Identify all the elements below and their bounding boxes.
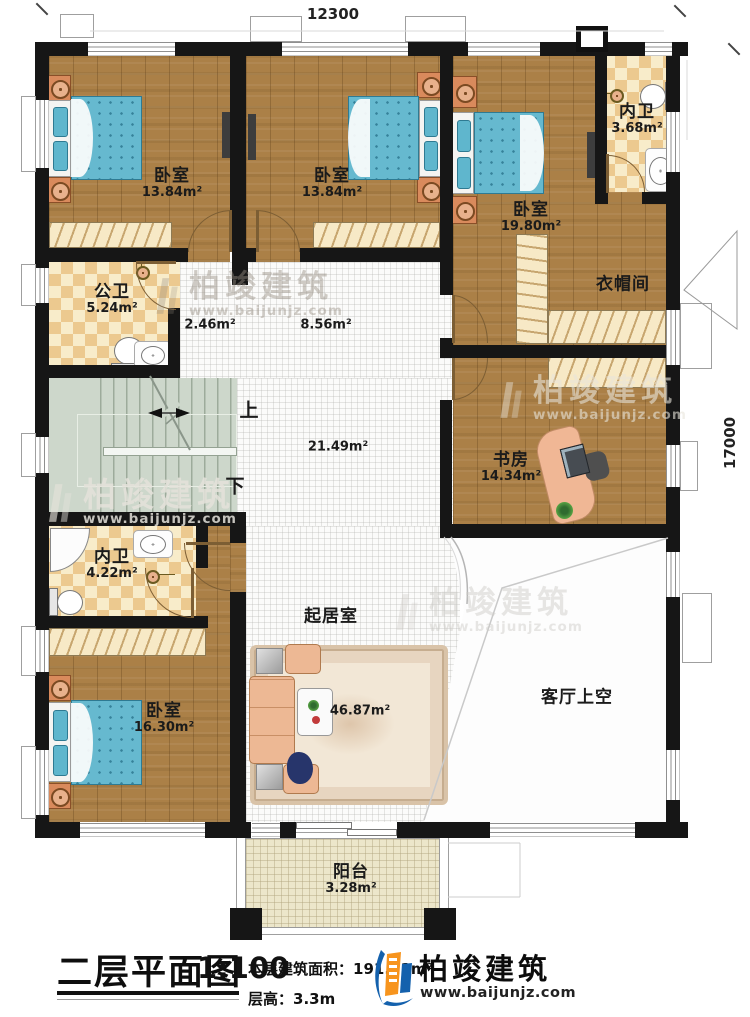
window — [666, 750, 680, 800]
wall — [35, 365, 180, 378]
window-sill — [21, 626, 36, 676]
area-label-corridor: 8.56m² — [300, 319, 351, 334]
window — [252, 823, 280, 837]
window — [80, 823, 205, 837]
area-label-living: 46.87m² — [330, 705, 390, 720]
window-sill — [250, 16, 302, 42]
wall — [460, 822, 490, 838]
nightstand — [417, 177, 442, 203]
tv — [222, 112, 230, 158]
door-leaf — [191, 568, 194, 618]
room-label-living: 起居室 — [304, 607, 358, 626]
wall — [49, 616, 208, 628]
window — [490, 823, 635, 837]
window-sill — [21, 96, 36, 172]
sofa — [249, 676, 295, 764]
wall — [35, 815, 49, 838]
window — [666, 552, 680, 597]
wall — [666, 800, 680, 838]
wall — [280, 822, 296, 838]
wall — [642, 192, 680, 204]
window — [35, 437, 49, 473]
armchair — [285, 644, 321, 674]
dimension-tick — [36, 3, 49, 16]
area-label-hallway: 2.46m² — [184, 319, 235, 334]
window — [88, 42, 175, 56]
window — [666, 112, 680, 172]
tv — [587, 132, 595, 178]
room-label-ensuite-top: 内卫3.68m² — [611, 103, 662, 137]
stairs-up-label: 上 — [239, 400, 258, 421]
room-label-public-bath: 公卫5.24m² — [86, 283, 137, 317]
dimension-height: 17000 — [721, 417, 739, 469]
sink — [141, 346, 165, 365]
sliding-door — [347, 829, 397, 836]
tv — [248, 114, 256, 160]
door-leaf — [229, 210, 232, 252]
window-sill — [21, 746, 36, 819]
flower-decor — [308, 700, 319, 711]
window — [282, 42, 408, 56]
bed-headboard — [48, 100, 71, 177]
door-leaf — [256, 210, 259, 252]
wall — [666, 597, 680, 750]
cushion — [287, 752, 313, 784]
window-sill — [405, 16, 466, 42]
wardrobe — [49, 628, 206, 656]
window-sill — [680, 303, 712, 369]
sink — [140, 535, 166, 554]
nightstand — [46, 177, 71, 203]
window — [35, 268, 49, 303]
door-leaf — [452, 358, 455, 400]
wall — [408, 42, 468, 56]
wall — [175, 42, 282, 56]
window — [35, 630, 49, 672]
nightstand — [46, 675, 71, 701]
brand-name: 柏竣建筑 — [419, 946, 551, 988]
side-table — [256, 648, 283, 674]
nightstand — [450, 196, 477, 224]
room-label-bedroom-4: 卧室16.30m² — [134, 702, 194, 736]
ceiling-light-icon — [610, 89, 624, 103]
wall — [35, 248, 188, 262]
wall — [666, 487, 680, 552]
flower-decor — [312, 716, 320, 724]
chimney — [576, 26, 608, 52]
floor-height-label: 层高：3.3m — [248, 988, 335, 1009]
wall — [35, 672, 49, 750]
side-table — [256, 764, 283, 790]
window-sill — [60, 14, 94, 38]
stairs-down-label: 下 — [225, 476, 244, 497]
dimension-tick — [728, 43, 741, 56]
door-leaf — [186, 542, 230, 545]
nightstand — [450, 76, 477, 108]
room-label-study: 书房14.34m² — [481, 451, 541, 485]
bed-headboard — [48, 702, 71, 782]
title-underline — [57, 991, 239, 995]
brand-logo-icon — [371, 946, 417, 1010]
toilet — [57, 590, 83, 615]
window — [468, 42, 540, 56]
wardrobe — [516, 234, 548, 344]
window — [666, 445, 680, 487]
wall — [635, 822, 688, 838]
door-leaf — [452, 295, 455, 343]
door-leaf — [136, 261, 176, 264]
brand-url: www.baijunjz.com — [420, 985, 576, 1001]
wall — [397, 822, 460, 838]
wall — [440, 400, 452, 536]
nightstand — [417, 72, 442, 98]
wall — [230, 592, 246, 838]
room-label-balcony: 阳台3.28m² — [325, 863, 376, 897]
window-sill — [21, 433, 36, 477]
window — [645, 42, 672, 56]
room-label-bedroom-1: 卧室13.84m² — [142, 167, 202, 201]
stair-handrail — [103, 447, 237, 456]
window — [35, 100, 49, 168]
dimension-width: 12300 — [307, 5, 359, 23]
column — [230, 908, 262, 940]
wardrobe — [49, 222, 172, 248]
room-label-closet: 衣帽间 — [596, 275, 650, 294]
window — [666, 310, 680, 365]
room-label-void: 客厅上空 — [541, 688, 613, 707]
room-label-bedroom-3: 卧室19.80m² — [501, 201, 561, 235]
bed-duvet — [348, 99, 370, 177]
title-underline-2 — [57, 999, 239, 1000]
wall — [440, 345, 680, 358]
floor-threshold — [230, 543, 246, 592]
wall — [230, 42, 246, 248]
wall — [35, 42, 49, 100]
coffee-table — [297, 688, 333, 736]
closet-rack — [548, 356, 666, 388]
void-over-livingroom — [424, 530, 666, 822]
wall — [232, 248, 256, 262]
wall — [666, 365, 680, 445]
wall — [35, 512, 246, 526]
sliding-door — [296, 822, 352, 829]
floor-plan: 柏竣建筑 www.baijunjz.com 柏竣建筑 www.baijunjz.… — [0, 0, 750, 1017]
wardrobe — [313, 222, 440, 248]
wall — [440, 524, 680, 538]
column — [424, 908, 456, 940]
dimension-tick — [674, 5, 687, 18]
wall — [300, 248, 453, 262]
window-sill — [21, 264, 36, 306]
door-leaf — [606, 154, 609, 193]
nightstand — [46, 783, 71, 809]
room-label-ensuite-bottom: 内卫4.22m² — [86, 548, 137, 582]
bed-headboard — [452, 112, 474, 194]
plant — [556, 502, 573, 519]
wall — [595, 192, 608, 204]
wall — [232, 262, 248, 285]
wall — [35, 473, 49, 630]
wall — [440, 42, 453, 295]
bed-headboard — [419, 100, 441, 177]
window-sill — [682, 593, 712, 663]
closet-rack — [548, 310, 666, 344]
window — [35, 750, 49, 815]
window-sill — [680, 441, 698, 491]
area-label-hall: 21.49m² — [308, 441, 368, 456]
room-label-bedroom-2: 卧室13.84m² — [302, 167, 362, 201]
nightstand — [46, 75, 71, 101]
